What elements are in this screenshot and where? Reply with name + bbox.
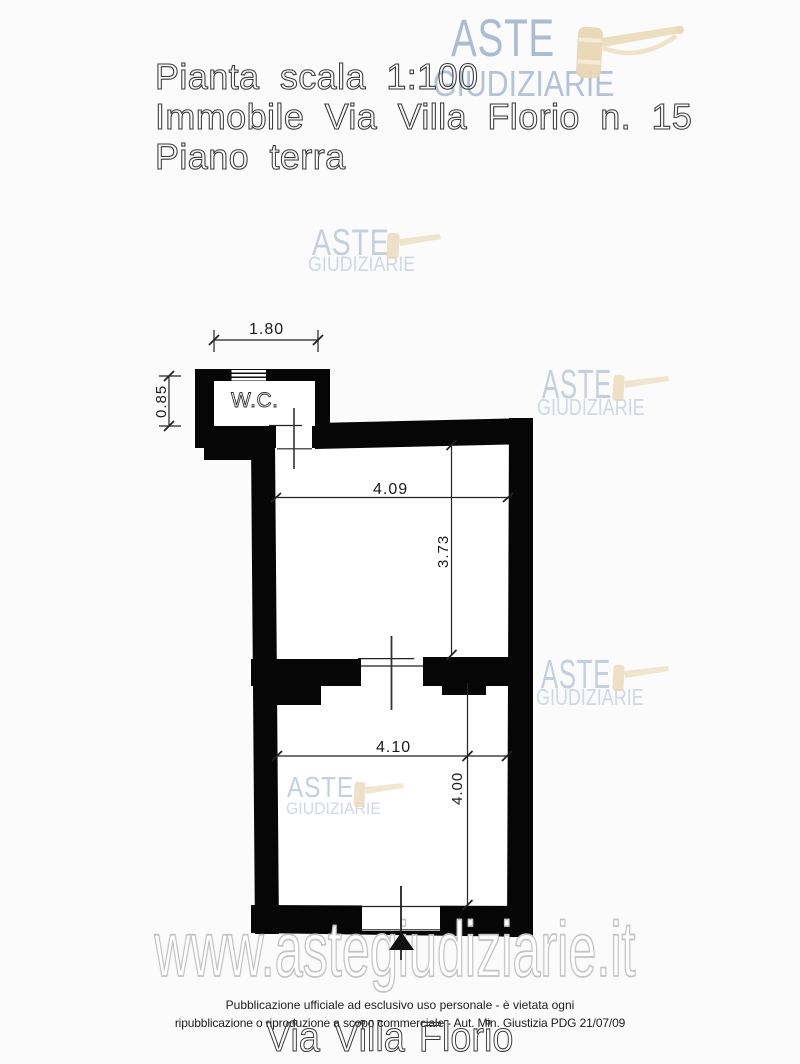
svg-text:1.80: 1.80 [249, 321, 284, 338]
svg-text:0.85: 0.85 [153, 385, 170, 418]
svg-text:4.09: 4.09 [373, 481, 408, 498]
svg-text:4.00: 4.00 [449, 772, 466, 805]
svg-text:3.73: 3.73 [435, 535, 452, 568]
svg-text:4.10: 4.10 [376, 739, 411, 756]
